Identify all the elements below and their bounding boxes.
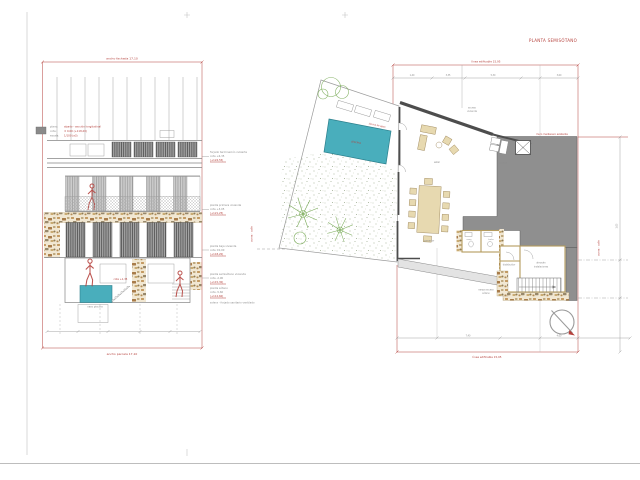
elevation-top-dimension: ancho fachada 17,10	[106, 57, 138, 61]
room-label: baño	[488, 238, 494, 241]
street-label-left: acera · calle	[250, 226, 254, 242]
info-label: plano:	[50, 125, 58, 129]
room-label: aseo	[467, 239, 473, 241]
svg-text:3,60: 3,60	[557, 74, 562, 77]
svg-text:cota -5,60: cota -5,60	[210, 290, 224, 294]
room-label: comedor	[424, 240, 435, 243]
svg-text:planta primera vivienda: planta primera vivienda	[210, 203, 241, 207]
svg-text:(+118,20): (+118,20)	[210, 252, 223, 256]
info-value: 1/100 (a3)	[64, 134, 78, 138]
svg-text:(+124,55): (+124,55)	[210, 158, 223, 162]
svg-text:5,30: 5,30	[491, 74, 496, 77]
svg-text:cota ±0,00: cota ±0,00	[210, 248, 225, 252]
room-label: almacén	[536, 262, 546, 265]
room-label: vivienda	[467, 110, 477, 113]
gravel-area	[280, 152, 397, 261]
info-label: escala:	[50, 134, 59, 138]
level-annotation-block: solera - forjado sanitario ventilado	[210, 301, 255, 305]
attic-windows	[47, 142, 202, 168]
basement-lines	[46, 304, 202, 336]
pool-level-note: cota +1,35	[114, 277, 128, 281]
person-figure-icon	[86, 259, 94, 286]
svg-text:planta semisótano vivienda: planta semisótano vivienda	[210, 272, 246, 276]
architectural-sheet: ancho fachada 17,10 ancho parcela 17,10 …	[0, 0, 640, 480]
ground-floor-section: cota +1,35 vaso piscina	[65, 258, 202, 309]
floorplan-drawing: PLANTA SEMISÓTANO línea edificable 15,95…	[250, 38, 632, 359]
north-arrow-icon	[550, 310, 575, 336]
elevation-drawing: ancho fachada 17,10 ancho parcela 17,10 …	[36, 57, 255, 357]
room-label: cocina	[499, 162, 507, 165]
room-label: sótano	[482, 292, 490, 295]
info-value: alzado - sección longitudinal	[64, 125, 101, 129]
elevation-bottom-dimension: ancho parcela 17,10	[107, 352, 138, 356]
shutter-floor	[44, 223, 202, 258]
svg-text:cota +6,35: cota +6,35	[210, 154, 225, 158]
party-wall-label: muro medianero existente	[536, 133, 568, 136]
svg-text:(+115,30): (+115,30)	[210, 280, 223, 284]
room-label: distribuidor	[503, 264, 516, 267]
svg-text:forjado terminación cubierta: forjado terminación cubierta	[210, 150, 247, 154]
room-label: instalaciones	[534, 265, 549, 268]
living-furniture	[418, 125, 459, 155]
access-ramp: rampa acceso sótano	[398, 259, 508, 296]
stone-band	[44, 213, 202, 223]
elevation-info-block: plano: alzado - sección longitudinal cot…	[50, 125, 101, 138]
garden: piscina lámina de agua	[279, 78, 399, 263]
chimney	[36, 127, 46, 134]
pool-section	[80, 286, 112, 303]
svg-text:cota -2,90: cota -2,90	[210, 276, 224, 280]
svg-text:(+121,25): (+121,25)	[210, 211, 223, 215]
room-label: estar	[434, 161, 440, 164]
storage-rooms: distribuidor almacén instalaciones	[500, 246, 569, 301]
level-annotation-block: planta primera vivienda cota +3,05 (+121…	[210, 203, 241, 215]
svg-text:1,05: 1,05	[616, 223, 619, 228]
level-annotations: forjado terminación cubierta cota +6,35 …	[202, 150, 255, 305]
svg-text:3,35: 3,35	[446, 74, 451, 77]
balcony-floor	[65, 176, 200, 212]
svg-text:solera - forjado sanitario ven: solera - forjado sanitario ventilado	[210, 301, 255, 305]
info-value: ± 0,00 (+118,20)	[64, 129, 87, 133]
plan-top-dimension: línea edificable 15,95	[472, 60, 501, 64]
street-label-right: acera · calle	[597, 240, 601, 256]
svg-text:acera · calle: acera · calle	[597, 240, 601, 256]
info-label: cota:	[50, 129, 57, 133]
svg-text:4,60: 4,60	[557, 334, 562, 337]
pool-basin-label: vaso piscina	[87, 305, 103, 309]
level-annotation-block: planta baja vivienda cota ±0,00 (+118,20…	[210, 244, 237, 256]
level-annotation-block: planta semisótano vivienda cota -2,90 (+…	[210, 272, 246, 284]
register-mark	[184, 12, 190, 18]
dining-table	[407, 177, 450, 243]
svg-text:planta sótano: planta sótano	[210, 286, 228, 290]
bathroom: aseo baño	[457, 229, 505, 269]
shaft	[516, 141, 531, 155]
svg-text:cota +3,05: cota +3,05	[210, 207, 225, 211]
svg-text:(+112,60): (+112,60)	[210, 294, 223, 298]
balcony-railing	[65, 197, 200, 212]
svg-text:7,40: 7,40	[466, 334, 471, 337]
drawing-canvas: ancho fachada 17,10 ancho parcela 17,10 …	[0, 0, 640, 480]
register-mark	[342, 12, 348, 18]
level-annotation-block: planta sótano cota -5,60 (+112,60)	[210, 286, 228, 298]
plan-title: PLANTA SEMISÓTANO	[529, 38, 577, 43]
svg-text:1,40: 1,40	[410, 74, 415, 77]
svg-text:planta baja vivienda: planta baja vivienda	[210, 244, 237, 248]
level-annotation-block: forjado terminación cubierta cota +6,35 …	[210, 150, 247, 162]
plan-bottom-dimension: línea edificable 15,95	[473, 355, 502, 359]
svg-text:acera · calle: acera · calle	[250, 226, 254, 242]
